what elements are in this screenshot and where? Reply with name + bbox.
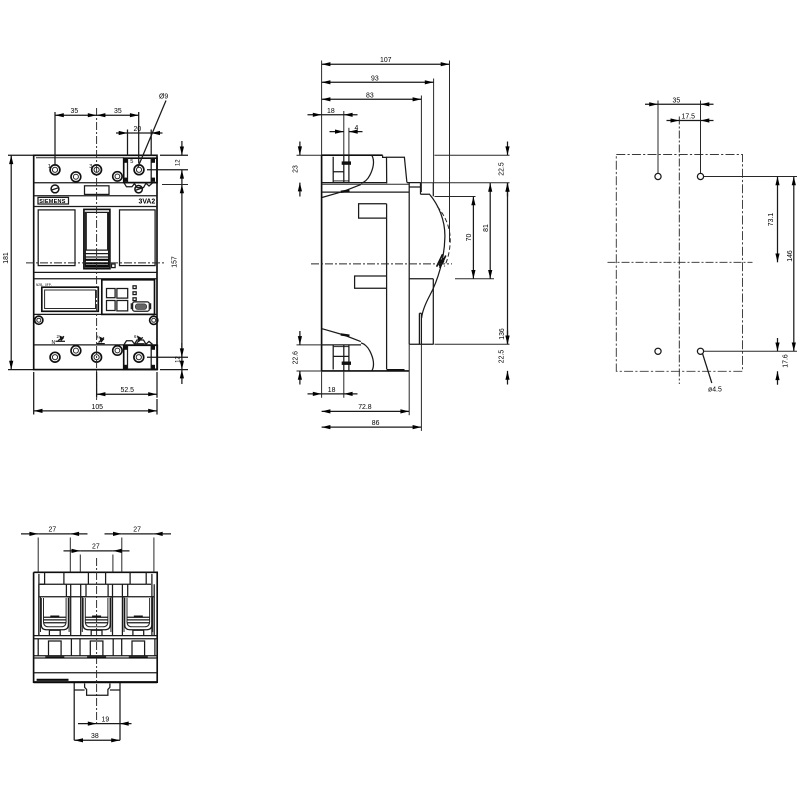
svg-text:12: 12 [176, 159, 182, 166]
svg-text:22.5: 22.5 [499, 162, 506, 176]
svg-text:20: 20 [134, 126, 142, 133]
svg-text:105: 105 [92, 404, 104, 411]
svg-text:38: 38 [91, 733, 99, 740]
svg-text:35: 35 [114, 108, 122, 115]
svg-text:27: 27 [133, 526, 141, 533]
svg-text:86: 86 [372, 420, 380, 427]
svg-text:81: 81 [483, 224, 490, 232]
svg-text:70: 70 [466, 234, 473, 242]
svg-text:35: 35 [673, 97, 681, 104]
svg-text:73.1: 73.1 [768, 213, 775, 227]
svg-text:146: 146 [787, 250, 794, 262]
svg-text:17.6: 17.6 [783, 354, 790, 368]
svg-text:27: 27 [92, 543, 100, 550]
svg-text:1: 1 [48, 164, 51, 170]
svg-text:181: 181 [3, 252, 10, 264]
svg-text:93: 93 [371, 75, 379, 82]
svg-text:19: 19 [102, 717, 110, 724]
svg-text:22.5: 22.5 [499, 350, 506, 364]
svg-text:12: 12 [176, 356, 182, 363]
svg-text:52.5: 52.5 [121, 387, 135, 394]
svg-text:17.5: 17.5 [682, 114, 696, 121]
svg-text:5: 5 [130, 159, 133, 165]
svg-text:N: N [52, 340, 56, 346]
svg-text:107: 107 [380, 57, 392, 64]
svg-text:72.8: 72.8 [358, 404, 372, 411]
svg-text:22.6: 22.6 [293, 351, 300, 365]
svg-text:23: 23 [293, 165, 300, 173]
svg-text:3VA2: 3VA2 [139, 199, 156, 206]
svg-text:ø4.5: ø4.5 [708, 387, 722, 394]
svg-text:18: 18 [328, 387, 336, 394]
svg-text:Ø9: Ø9 [159, 94, 168, 101]
svg-text:4: 4 [355, 125, 359, 132]
svg-text:27: 27 [49, 526, 57, 533]
svg-text:SIEMENS: SIEMENS [39, 199, 66, 205]
svg-text:157: 157 [172, 256, 179, 268]
svg-text:3: 3 [89, 164, 92, 170]
svg-text:35: 35 [71, 108, 79, 115]
svg-text:83: 83 [366, 92, 374, 99]
svg-text:136: 136 [499, 328, 506, 340]
svg-text:18: 18 [327, 108, 335, 115]
